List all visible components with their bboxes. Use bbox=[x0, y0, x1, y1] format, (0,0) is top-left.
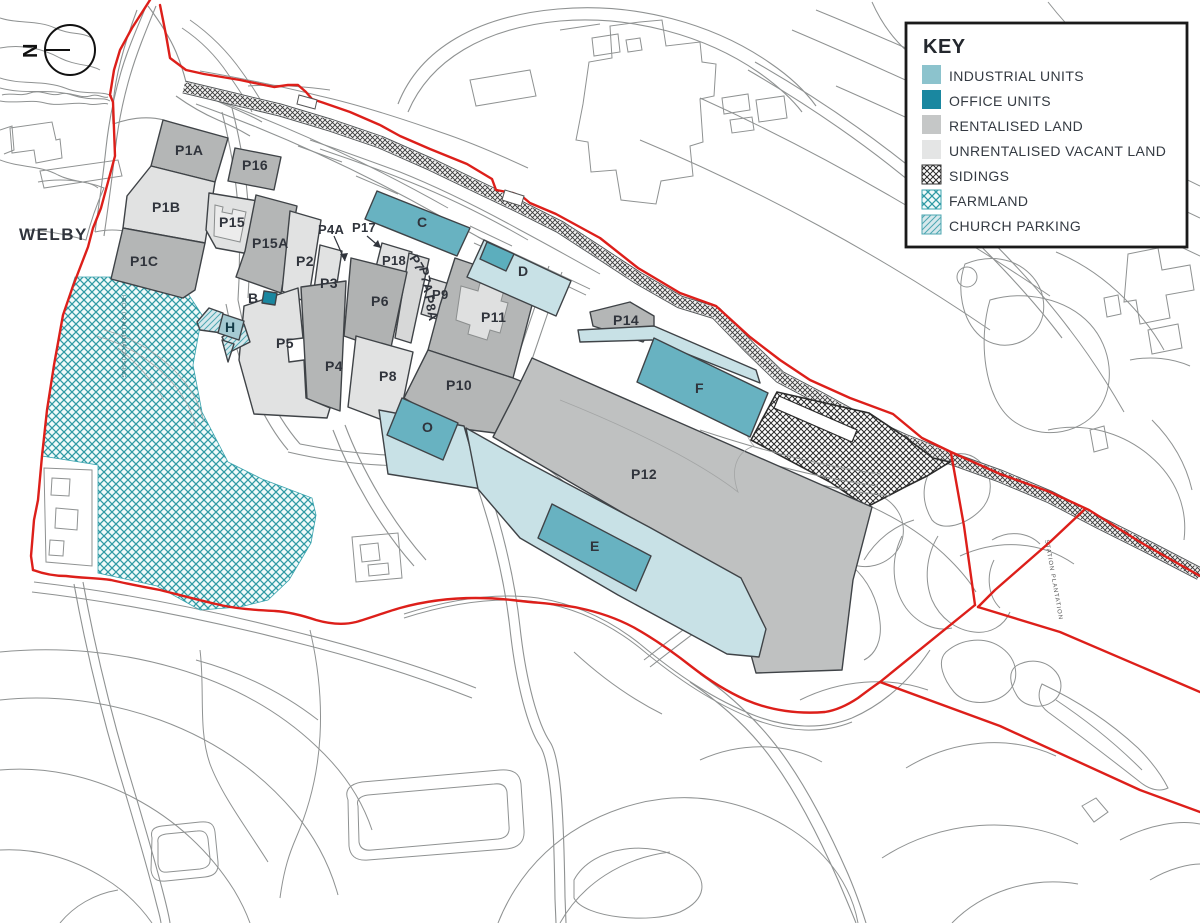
svg-text:P12: P12 bbox=[631, 466, 657, 482]
svg-text:P15: P15 bbox=[219, 214, 245, 230]
svg-text:P4: P4 bbox=[325, 358, 343, 374]
svg-text:P1C: P1C bbox=[130, 253, 158, 269]
svg-text:CHURCH PARKING: CHURCH PARKING bbox=[949, 218, 1081, 234]
svg-text:F: F bbox=[695, 380, 704, 396]
svg-text:HECK OR ALLELUIA CROSSING: HECK OR ALLELUIA CROSSING bbox=[120, 295, 126, 378]
svg-text:P11: P11 bbox=[481, 309, 506, 325]
svg-text:P17: P17 bbox=[352, 220, 376, 235]
svg-text:INDUSTRIAL UNITS: INDUSTRIAL UNITS bbox=[949, 68, 1084, 84]
svg-text:C: C bbox=[417, 214, 428, 230]
svg-text:P1B: P1B bbox=[152, 199, 180, 215]
svg-text:KEY: KEY bbox=[923, 36, 966, 58]
svg-text:P15A: P15A bbox=[252, 235, 289, 251]
svg-text:P14: P14 bbox=[613, 312, 639, 328]
svg-text:P1A: P1A bbox=[175, 142, 203, 158]
svg-text:P9: P9 bbox=[432, 287, 449, 302]
svg-text:P8: P8 bbox=[379, 368, 397, 384]
svg-text:P10: P10 bbox=[446, 377, 472, 393]
svg-text:OFFICE UNITS: OFFICE UNITS bbox=[949, 93, 1051, 109]
svg-text:O: O bbox=[422, 419, 433, 435]
svg-text:UNRENTALISED VACANT LAND: UNRENTALISED VACANT LAND bbox=[949, 143, 1166, 159]
svg-text:P3: P3 bbox=[320, 275, 338, 291]
svg-text:D: D bbox=[518, 263, 529, 279]
svg-text:RENTALISED LAND: RENTALISED LAND bbox=[949, 118, 1083, 134]
svg-text:WELBY: WELBY bbox=[19, 225, 88, 244]
svg-text:N: N bbox=[20, 44, 42, 58]
svg-text:P6: P6 bbox=[371, 293, 389, 309]
svg-text:B: B bbox=[248, 290, 259, 306]
svg-text:P16: P16 bbox=[242, 157, 268, 173]
svg-text:FARMLAND: FARMLAND bbox=[949, 193, 1028, 209]
svg-text:P4A: P4A bbox=[318, 222, 345, 237]
svg-text:P2: P2 bbox=[296, 253, 314, 269]
svg-text:P18: P18 bbox=[382, 253, 406, 268]
svg-text:P5: P5 bbox=[276, 335, 294, 351]
svg-text:SIDINGS: SIDINGS bbox=[949, 168, 1009, 184]
svg-text:H: H bbox=[225, 319, 235, 335]
svg-text:E: E bbox=[590, 538, 600, 554]
